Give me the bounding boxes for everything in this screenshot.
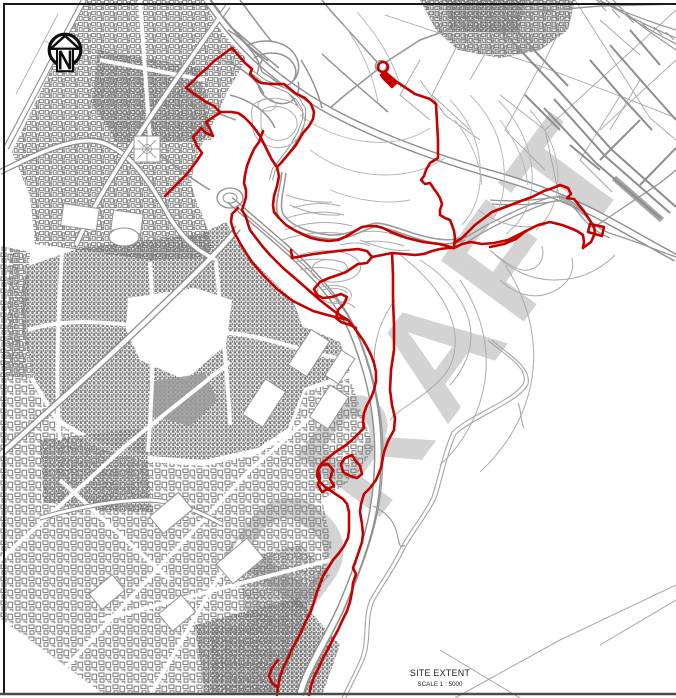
svg-text:SCALE 1 : 5000: SCALE 1 : 5000 <box>417 681 463 688</box>
svg-text:SITE EXTENT: SITE EXTENT <box>410 668 471 678</box>
